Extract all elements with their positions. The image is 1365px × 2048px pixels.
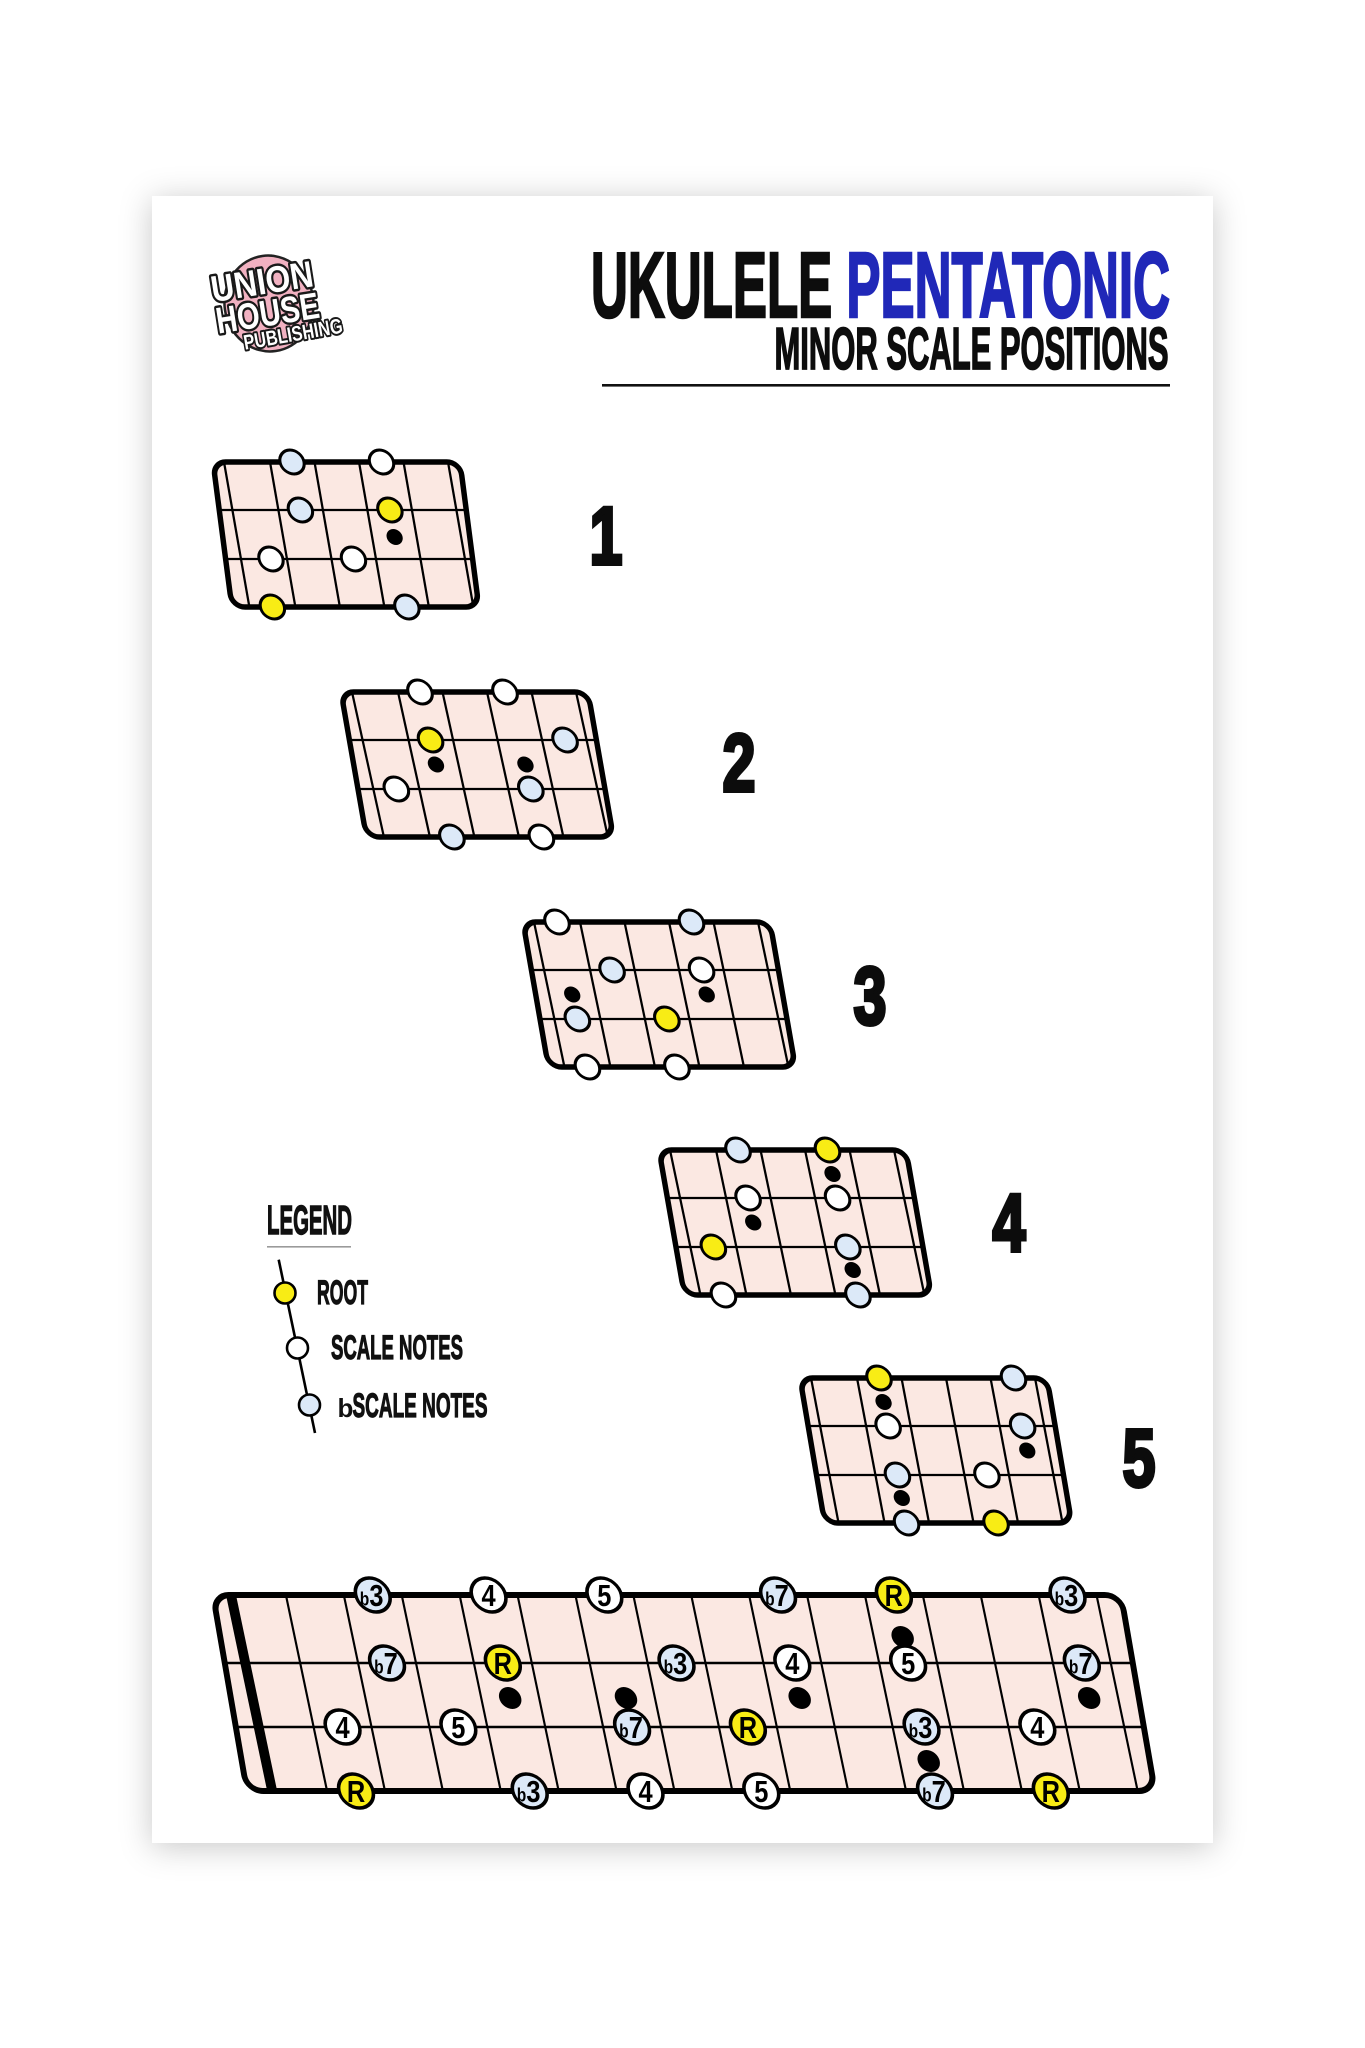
svg-text:4: 4: [638, 1775, 652, 1810]
svg-text:4: 4: [785, 1647, 799, 1682]
svg-text:MINOR SCALE POSITIONS: MINOR SCALE POSITIONS: [775, 315, 1169, 382]
svg-text:ROOT: ROOT: [317, 1274, 368, 1312]
svg-text:b: b: [1055, 1588, 1065, 1610]
svg-text:5: 5: [451, 1711, 465, 1746]
svg-text:b: b: [619, 1720, 629, 1742]
svg-text:b: b: [922, 1784, 932, 1806]
svg-text:7: 7: [775, 1579, 789, 1614]
svg-text:4: 4: [481, 1579, 495, 1614]
svg-text:R: R: [885, 1579, 903, 1614]
svg-text:b: b: [765, 1588, 775, 1610]
svg-text:5: 5: [901, 1647, 915, 1682]
svg-text:b: b: [374, 1656, 384, 1678]
svg-text:b: b: [338, 1393, 354, 1423]
svg-text:7: 7: [629, 1711, 643, 1746]
svg-text:3: 3: [1064, 1579, 1078, 1614]
svg-text:5: 5: [597, 1579, 611, 1614]
svg-text:3: 3: [526, 1775, 540, 1810]
svg-text:5: 5: [1123, 1413, 1156, 1504]
svg-text:2: 2: [723, 718, 756, 809]
svg-text:SCALE NOTES: SCALE NOTES: [331, 1329, 463, 1367]
svg-text:3: 3: [673, 1647, 687, 1682]
svg-text:7: 7: [932, 1775, 946, 1810]
svg-text:7: 7: [384, 1647, 398, 1682]
svg-text:b: b: [664, 1656, 674, 1678]
svg-text:b: b: [1069, 1656, 1079, 1678]
svg-text:4: 4: [1030, 1711, 1044, 1746]
svg-text:3: 3: [918, 1711, 932, 1746]
svg-text:3: 3: [854, 951, 887, 1042]
svg-text:1: 1: [590, 491, 623, 582]
svg-text:b: b: [360, 1588, 370, 1610]
svg-text:b: b: [909, 1720, 919, 1742]
svg-text:R: R: [739, 1711, 757, 1746]
svg-text:R: R: [347, 1775, 365, 1810]
svg-text:5: 5: [754, 1775, 768, 1810]
svg-text:4: 4: [336, 1711, 350, 1746]
svg-text:R: R: [494, 1647, 512, 1682]
svg-text:LEGEND: LEGEND: [267, 1197, 352, 1243]
svg-text:3: 3: [369, 1579, 383, 1614]
svg-text:7: 7: [1078, 1647, 1092, 1682]
svg-text:SCALE NOTES: SCALE NOTES: [353, 1387, 488, 1425]
svg-text:b: b: [517, 1784, 527, 1806]
svg-text:4: 4: [993, 1178, 1026, 1269]
svg-text:R: R: [1042, 1775, 1060, 1810]
